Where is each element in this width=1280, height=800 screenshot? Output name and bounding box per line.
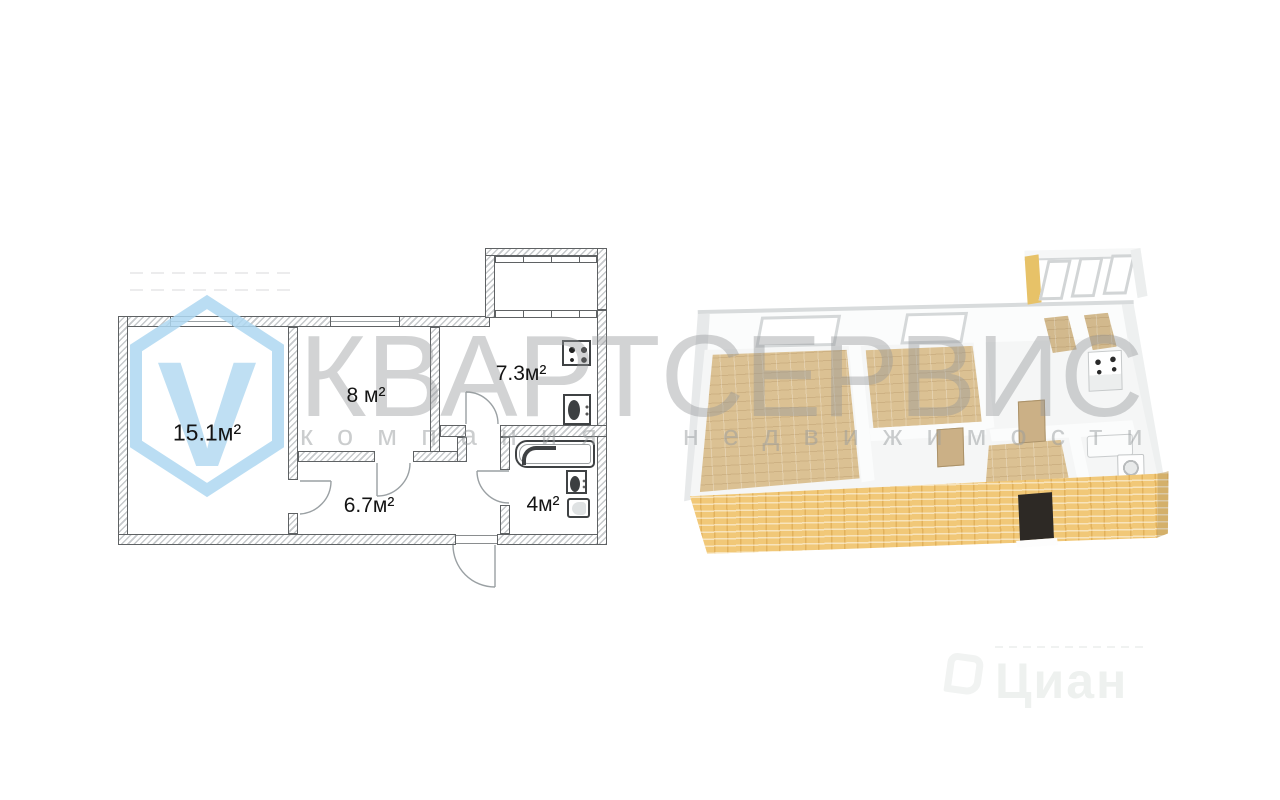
door-arc-living: [300, 481, 331, 514]
living-window-3d: [755, 315, 841, 348]
stove-3d: [1088, 350, 1123, 392]
balcony-window-3d: [1071, 257, 1104, 298]
floorplan-screenshot: V КВАРТСЕРВИС компания недвижимости Циан…: [0, 0, 1280, 800]
balcony-window-3d: [1039, 260, 1072, 301]
floor-plan-3d: [669, 247, 1176, 568]
interior-door-3d: [936, 427, 964, 467]
door-arc-entrance: [453, 545, 495, 587]
door-arc-kitchen: [466, 392, 498, 424]
door-arc-bedroom: [377, 463, 410, 496]
door-arc-bathroom: [477, 471, 509, 503]
bedroom-window-3d: [900, 312, 968, 345]
balcony-window-3d: [1102, 254, 1135, 295]
interior-door-3d: [1018, 400, 1046, 444]
